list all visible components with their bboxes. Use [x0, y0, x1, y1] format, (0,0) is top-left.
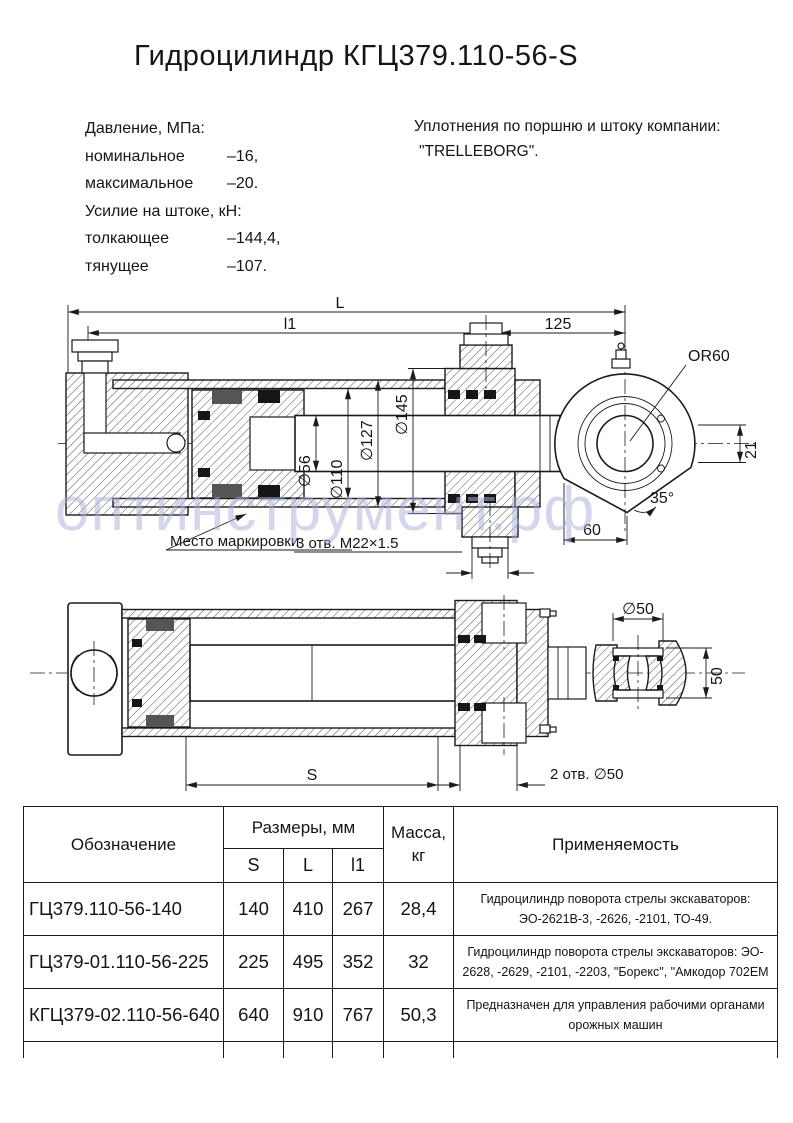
spec-row: максимальное –20.	[85, 175, 365, 203]
svg-text:35°: 35°	[650, 490, 674, 507]
cell-mass: 28,4	[384, 883, 454, 936]
spec-row: толкающее –144,4,	[85, 230, 365, 258]
svg-text:3 отв. М22×1.5: 3 отв. М22×1.5	[296, 535, 399, 552]
cell-mass: 50,3	[384, 989, 454, 1042]
cell-l: 410	[284, 883, 333, 936]
cell-application: Предназначен для управления рабочими орг…	[454, 989, 778, 1042]
svg-text:l1: l1	[284, 316, 297, 333]
dim-L: L	[68, 295, 625, 375]
svg-text:125: 125	[545, 316, 572, 333]
spec-label: номинальное	[85, 148, 227, 166]
grease-fitting-icon	[612, 343, 630, 368]
cell-designation: ГЦ379-01.110-56-225	[24, 936, 224, 989]
cell-application: Гидроцилиндр поворота стрелы экскаваторо…	[454, 883, 778, 936]
spec-value: –20.	[227, 175, 258, 193]
spec-row: Усилие на штоке, кН:	[85, 203, 365, 231]
table-cell-empty	[224, 1042, 284, 1058]
grease-fitting-icon	[540, 725, 556, 733]
seals-note-line2: "TRELLEBORG".	[414, 143, 721, 161]
cell-mass: 32	[384, 936, 454, 989]
table-cell-empty	[384, 1042, 454, 1058]
svg-text:60: 60	[583, 522, 601, 539]
spec-value: –144,4,	[227, 230, 280, 248]
svg-text:∅50: ∅50	[622, 601, 654, 618]
cell-l1: 352	[333, 936, 384, 989]
cell-application: Гидроцилиндр поворота стрелы экскаваторо…	[454, 936, 778, 989]
svg-text:∅110: ∅110	[329, 459, 346, 499]
cell-designation: ГЦ379.110-56-140	[24, 883, 224, 936]
seals-note-line1: Уплотнения по поршню и штоку компании:	[414, 118, 721, 136]
spec-value: –16,	[227, 148, 258, 166]
table-row: ГЦ379-01.110-56-225 225 495 352 32 Гидро…	[24, 936, 778, 989]
seals-note: Уплотнения по поршню и штоку компании: "…	[414, 118, 721, 161]
spec-value: –107.	[227, 258, 267, 276]
svg-text:L: L	[336, 295, 345, 312]
spec-label: максимальное	[85, 175, 227, 193]
spec-label: Усилие на штоке, кН:	[85, 203, 242, 221]
cell-s: 140	[224, 883, 284, 936]
cell-l: 910	[284, 989, 333, 1042]
svg-text:2 отв. ∅50: 2 отв. ∅50	[550, 766, 623, 783]
col-header-l1: l1	[333, 849, 384, 883]
head-gland	[455, 595, 556, 755]
rear-mount-plate	[68, 603, 122, 755]
dim-d127: ∅127	[359, 380, 378, 507]
specs-block: Давление, МПа: номинальное –16, максимал…	[85, 120, 365, 285]
grease-fitting-icon	[540, 609, 556, 617]
svg-text:∅145: ∅145	[394, 394, 411, 435]
drawing-sheet: Гидроцилиндр КГЦ379.110-56-S Давление, М…	[0, 0, 793, 1123]
table-cell-empty	[284, 1042, 333, 1058]
svg-text:∅127: ∅127	[359, 420, 376, 461]
col-header-mass: Масса, кг	[384, 807, 454, 883]
table-row: КГЦ379-02.110-56-640 640 910 767 50,3 Пр…	[24, 989, 778, 1042]
variants-table: Обозначение Размеры, мм Масса, кг Примен…	[23, 806, 778, 1058]
cell-l1: 267	[333, 883, 384, 936]
col-header-designation: Обозначение	[24, 807, 224, 883]
piston	[192, 390, 304, 498]
cell-l: 495	[284, 936, 333, 989]
cell-s: 225	[224, 936, 284, 989]
spec-label: Давление, МПа:	[85, 120, 227, 138]
page-title: Гидроцилиндр КГЦ379.110-56-S	[134, 40, 578, 73]
svg-text:S: S	[307, 767, 318, 784]
rod-end	[548, 647, 586, 699]
cell-s: 640	[224, 989, 284, 1042]
dim-2-holes: 2 отв. ∅50	[432, 745, 623, 791]
drawing-extended-view: L l1 125	[0, 295, 793, 595]
spec-row: тянущее –107.	[85, 258, 365, 286]
drawing-retracted-view: ∅50 50 S 2 отв. ∅50	[0, 593, 793, 808]
table-cell-empty	[24, 1042, 224, 1058]
table-row: ГЦ379.110-56-140 140 410 267 28,4 Гидроц…	[24, 883, 778, 936]
col-header-s: S	[224, 849, 284, 883]
svg-text:OR60: OR60	[688, 348, 730, 365]
dim-S: S	[186, 737, 438, 791]
table-row-partial	[24, 1042, 778, 1058]
cell-designation: КГЦ379-02.110-56-640	[24, 989, 224, 1042]
svg-text:∅56: ∅56	[297, 455, 314, 487]
piston	[128, 619, 190, 727]
dim-l1-125: l1 125	[88, 316, 625, 375]
rear-cap	[66, 340, 188, 515]
svg-text:21: 21	[743, 441, 760, 459]
spec-label: толкающее	[85, 230, 227, 248]
table-cell-empty	[333, 1042, 384, 1058]
svg-text:Место маркировки: Место маркировки	[170, 533, 299, 550]
svg-text:50: 50	[709, 667, 726, 685]
spec-row: Давление, МПа:	[85, 120, 365, 148]
col-header-application: Применяемость	[454, 807, 778, 883]
col-header-l: L	[284, 849, 333, 883]
spec-label: тянущее	[85, 258, 227, 276]
col-header-sizes: Размеры, мм	[224, 807, 384, 849]
table-cell-empty	[454, 1042, 778, 1058]
cell-l1: 767	[333, 989, 384, 1042]
spec-row: номинальное –16,	[85, 148, 365, 176]
